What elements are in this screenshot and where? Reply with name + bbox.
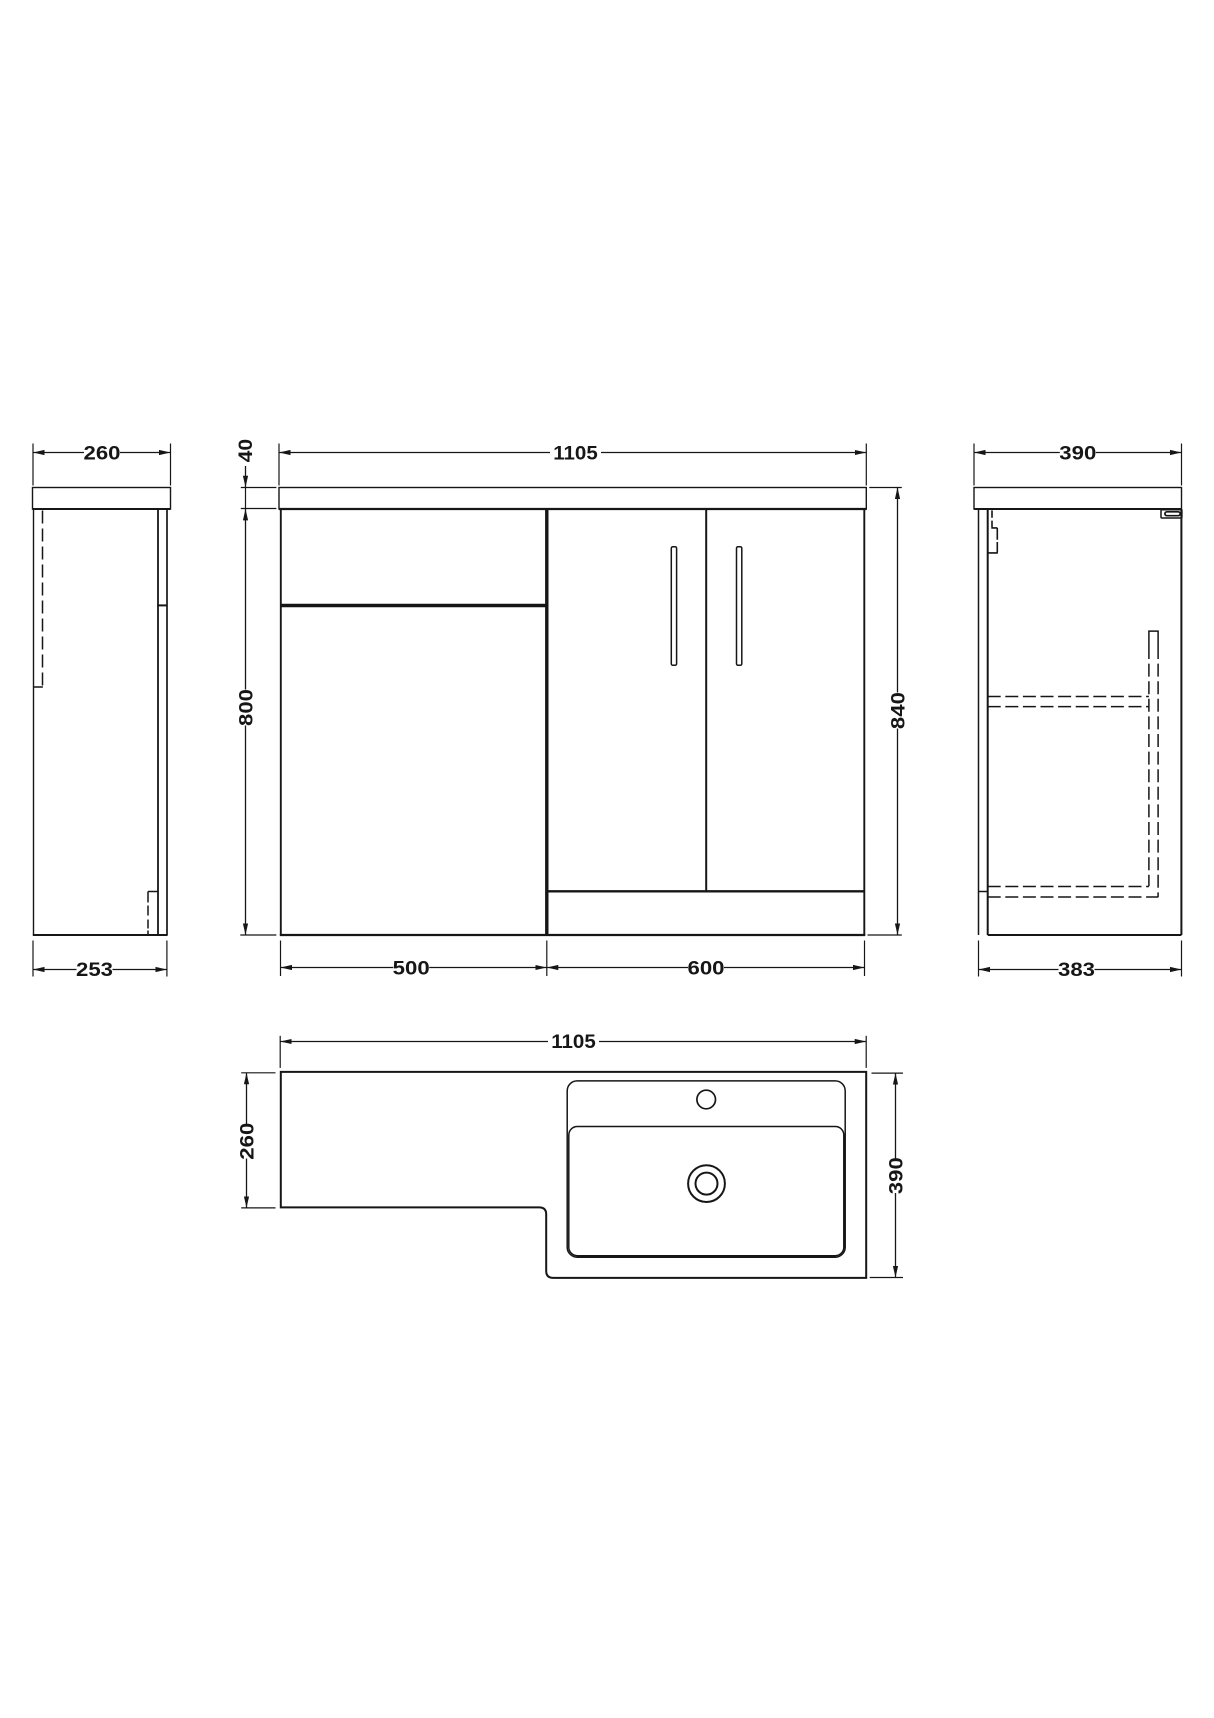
svg-text:600: 600 [688,958,725,979]
svg-text:253: 253 [76,960,113,981]
svg-text:383: 383 [1058,960,1095,981]
svg-text:1105: 1105 [551,1032,596,1053]
svg-text:500: 500 [393,958,430,979]
svg-text:260: 260 [237,1123,258,1160]
svg-text:390: 390 [1059,443,1096,464]
svg-text:390: 390 [886,1157,907,1194]
svg-text:40: 40 [236,439,257,463]
svg-text:1105: 1105 [553,444,598,465]
svg-text:260: 260 [84,443,121,464]
svg-text:800: 800 [236,689,257,726]
svg-text:840: 840 [888,692,909,729]
